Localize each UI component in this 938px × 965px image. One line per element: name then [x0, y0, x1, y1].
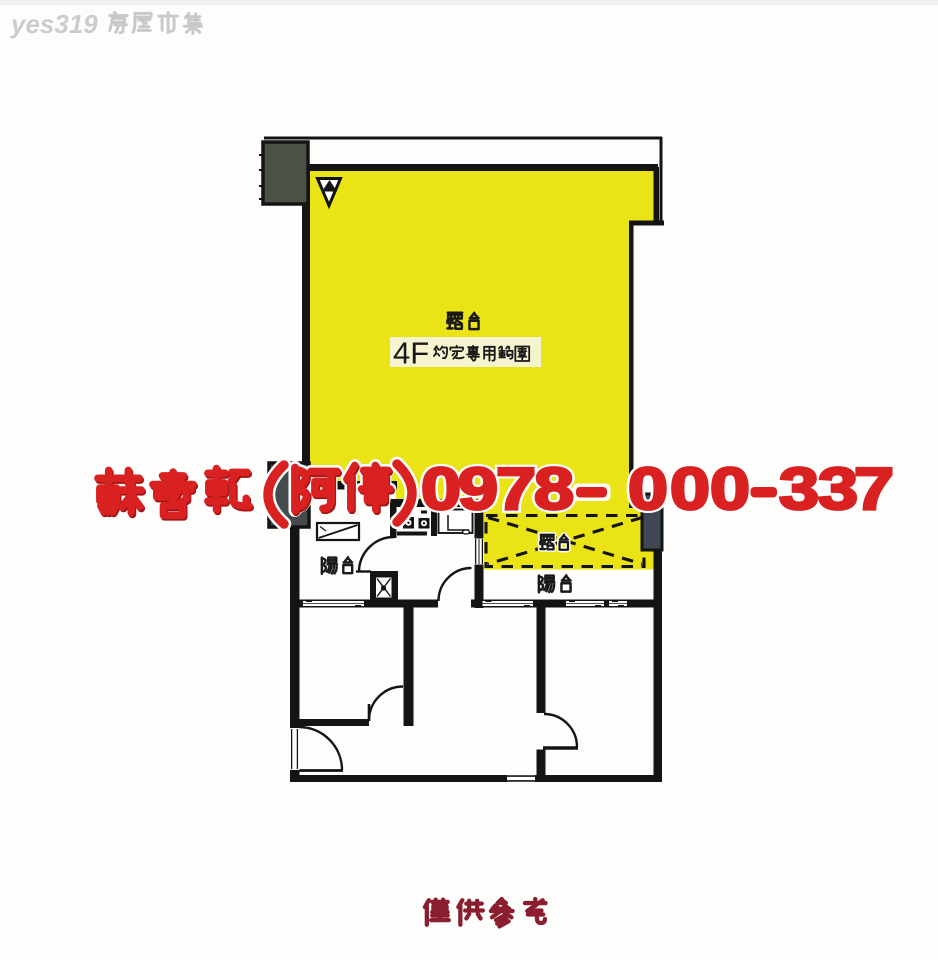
svg-text:yes319: yes319 — [9, 9, 98, 39]
svg-text:0978000337: 0978000337 — [421, 455, 894, 521]
svg-text:4F: 4F — [393, 336, 429, 371]
